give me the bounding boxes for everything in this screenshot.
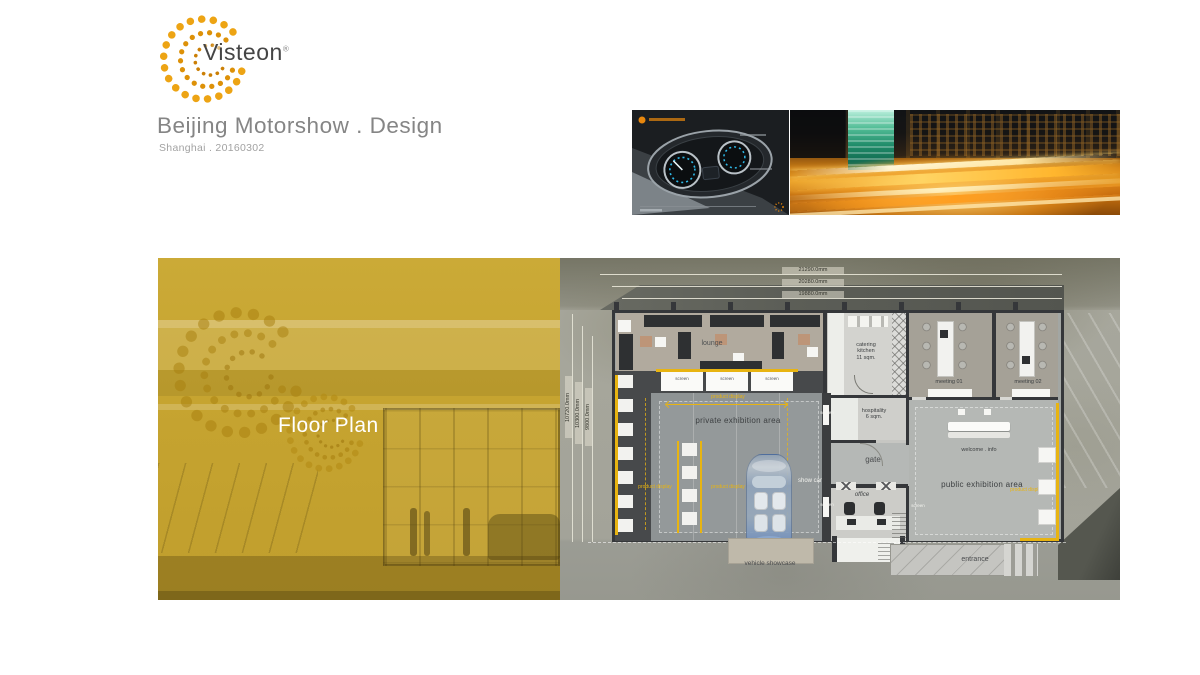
private-area-label: private exhibition area — [678, 416, 798, 425]
screen-unit: screen — [706, 372, 748, 391]
lounge-table — [618, 320, 631, 332]
office-window-x — [876, 482, 896, 490]
photo-person — [424, 511, 430, 556]
screen-unit: screen — [661, 372, 703, 391]
meeting-01-laptop — [940, 330, 948, 338]
product-display-label: product display — [700, 395, 756, 401]
meeting-02-chairs — [1006, 320, 1015, 376]
office-chair — [874, 502, 885, 515]
welcome-info-label: welcome . info — [949, 447, 1009, 453]
car-seat — [754, 514, 768, 532]
wall — [906, 486, 909, 541]
meeting-02-laptop — [1022, 356, 1030, 364]
display-rail — [1056, 403, 1059, 541]
site-diagonal-streaks — [1064, 313, 1120, 488]
car-windshield — [752, 476, 786, 488]
office-desk — [836, 516, 900, 530]
catering-kitchen-label: catering kitchen 11 sqm. — [844, 342, 888, 361]
meeting-02-table — [1019, 321, 1035, 377]
dimension-label-left-3: 9800.0mm — [585, 388, 592, 446]
meeting-01-label: meeting 01 — [919, 379, 979, 385]
meeting-01-chairs — [958, 320, 967, 376]
dimension-label-top-1: 21290.0mm — [782, 267, 844, 274]
wall — [826, 395, 908, 398]
dimension-label-top-3: 19880.0mm — [782, 291, 844, 298]
dimension-label-left-2: 10300.0mm — [575, 382, 582, 444]
display-shelves — [618, 375, 633, 535]
wall — [992, 313, 996, 397]
meeting-01-sideboard — [928, 389, 972, 397]
display-rack — [677, 441, 702, 533]
dimension-label-left-1: 10720.0mm — [565, 376, 572, 438]
lounge-label: lounge — [688, 340, 736, 348]
car-hood-line — [752, 460, 786, 472]
entrance-label: entrance — [945, 556, 1005, 564]
hospitality-label: hospitality 6 sqm. — [852, 408, 896, 421]
dimension-line-left — [592, 336, 593, 542]
photo-person — [463, 508, 470, 556]
screen-unit: screen — [751, 372, 793, 391]
dimension-arrow — [667, 404, 787, 405]
dimension-line-left — [582, 326, 583, 542]
brand-name: Visteon — [203, 39, 283, 65]
site-dashed-line — [588, 542, 1066, 543]
lounge-sofa — [770, 315, 820, 327]
screen-label: screen — [810, 410, 844, 415]
meeting-02-label: meeting 02 — [998, 379, 1058, 385]
lounge-table — [655, 337, 666, 347]
car-seat — [772, 492, 786, 510]
vehicle-showcase-label: vehicle showcase — [720, 560, 820, 567]
office-stair-hatch — [892, 512, 906, 538]
photo-car — [488, 514, 560, 560]
screen-label: screen — [751, 376, 793, 381]
city-lights-image — [790, 110, 1120, 215]
visteon-logo-text: Visteon® — [203, 39, 289, 66]
cluster-art — [632, 110, 789, 215]
roof-column-marks — [614, 302, 1062, 310]
lounge-rug — [640, 336, 652, 347]
dimension-label-top-2: 20280.0mm — [782, 279, 844, 286]
meeting-02-chairs — [1038, 320, 1047, 376]
office-chair — [844, 502, 855, 515]
photo-person — [410, 508, 417, 556]
dimension-line-top — [612, 286, 1062, 287]
wall — [832, 536, 837, 562]
kitchen-counter — [848, 316, 888, 327]
registered-mark: ® — [283, 44, 289, 53]
office-monitor — [877, 519, 886, 525]
section-title: Floor Plan — [278, 414, 379, 438]
office-monitor — [847, 519, 856, 525]
screen-label: screen — [906, 503, 930, 508]
display-shelf — [1038, 447, 1056, 463]
page-subtitle: Shanghai . 20160302 — [159, 142, 265, 154]
lounge-sofa — [772, 332, 784, 359]
lounge-sofa — [710, 315, 764, 327]
photo-site-lines — [158, 463, 318, 553]
meeting-01-chairs — [922, 320, 931, 376]
dimension-line-top — [600, 274, 1062, 275]
meeting-02-sideboard — [1012, 389, 1050, 397]
screen-label: screen — [661, 376, 703, 381]
cover-panel: Floor Plan — [158, 258, 560, 600]
welcome-kiosk — [984, 409, 991, 415]
dimension-line-left — [572, 314, 573, 542]
cluster-concept-image — [632, 110, 789, 215]
office-label: office — [840, 492, 884, 499]
wall — [909, 397, 1058, 400]
wall — [826, 440, 876, 443]
welcome-kiosk — [958, 409, 965, 415]
screen-label: screen — [810, 502, 844, 507]
car-seat — [754, 492, 768, 510]
display-shelf — [1038, 479, 1056, 495]
kitchen-shaft-hatch — [892, 313, 906, 395]
floor-plan-panel: 21290.0mm 20280.0mm 19880.0mm 10720.0mm … — [560, 258, 1120, 600]
lounge-table — [807, 347, 818, 357]
welcome-desk — [948, 422, 1010, 431]
show-car-label: show car — [798, 478, 842, 485]
lounge-rug — [798, 334, 810, 345]
dimension-line-top — [622, 298, 1062, 299]
wall — [906, 313, 909, 445]
product-display-label: product display — [630, 485, 680, 491]
page-title: Beijing Motorshow . Design — [157, 113, 443, 139]
kitchen-corridor — [828, 313, 844, 395]
welcome-desk-front — [948, 432, 1010, 438]
car-seat — [772, 514, 786, 532]
lounge-sofa — [644, 315, 702, 327]
photo-ground — [158, 591, 560, 600]
slide: Visteon® Beijing Motorshow . Design Shan… — [0, 0, 1200, 675]
lounge-sofa — [619, 334, 633, 370]
meeting-02-door-gap — [1000, 397, 1012, 400]
wall — [823, 310, 827, 395]
entrance-steps — [1004, 544, 1038, 576]
screen-label: screen — [706, 376, 748, 381]
guide-line — [645, 398, 646, 530]
meeting-01-door-gap — [912, 397, 926, 400]
display-shelf — [1038, 509, 1056, 525]
display-rail — [1020, 538, 1059, 541]
